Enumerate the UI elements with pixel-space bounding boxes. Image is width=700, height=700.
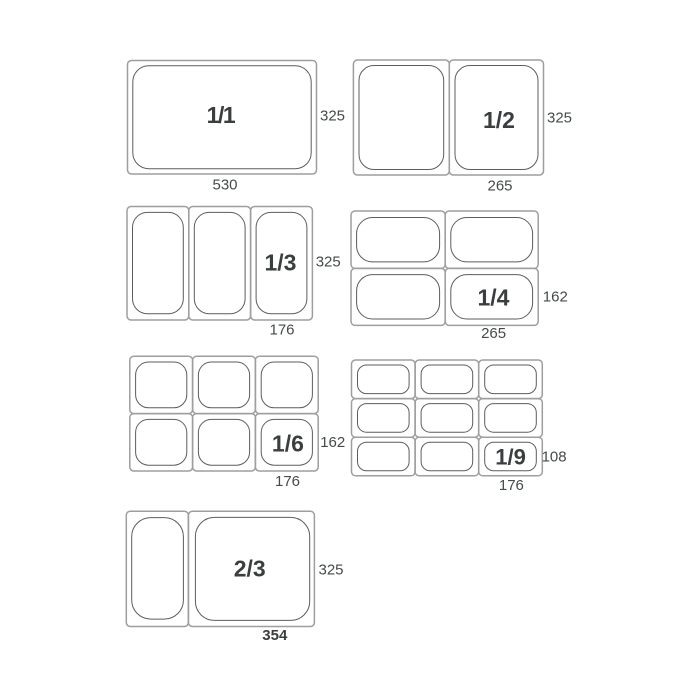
svg-text:325: 325 [319, 561, 344, 578]
svg-text:325: 325 [316, 254, 341, 271]
svg-text:1/6: 1/6 [272, 431, 304, 457]
svg-text:530: 530 [212, 177, 237, 194]
svg-text:176: 176 [269, 322, 294, 339]
svg-text:1/2: 1/2 [483, 107, 515, 133]
svg-text:176: 176 [275, 473, 300, 490]
svg-text:176: 176 [499, 477, 524, 494]
svg-text:325: 325 [547, 110, 572, 127]
svg-text:162: 162 [320, 434, 345, 451]
svg-text:162: 162 [543, 289, 568, 306]
svg-text:108: 108 [542, 448, 567, 465]
svg-text:325: 325 [320, 108, 345, 125]
svg-text:2/3: 2/3 [234, 556, 266, 582]
svg-text:1/9: 1/9 [495, 445, 526, 470]
svg-text:1/1: 1/1 [207, 102, 236, 128]
svg-text:1/3: 1/3 [265, 249, 297, 275]
svg-text:265: 265 [487, 178, 512, 195]
svg-text:265: 265 [481, 325, 506, 342]
svg-text:1/4: 1/4 [478, 285, 510, 311]
svg-text:354: 354 [262, 627, 288, 644]
